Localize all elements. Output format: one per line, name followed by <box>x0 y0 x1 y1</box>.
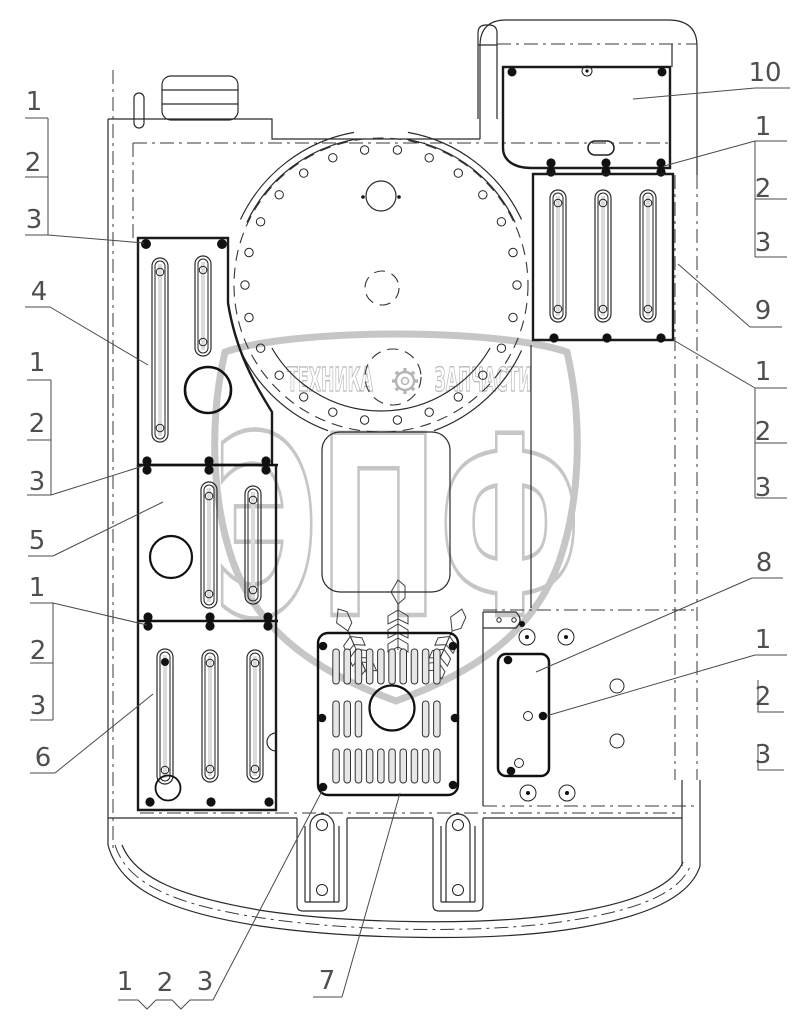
callout-label: 2 <box>755 174 772 204</box>
callout-label: 1 <box>755 112 772 142</box>
callout-label: 2 <box>755 682 772 712</box>
louvers-row-3 <box>333 749 440 783</box>
hull-inner <box>122 845 683 922</box>
callout-label: 8 <box>756 548 773 578</box>
callout-label: 3 <box>197 967 214 997</box>
vent-center-hole <box>370 686 415 731</box>
callout-label: 10 <box>748 58 781 88</box>
callout-label: 4 <box>31 277 48 307</box>
callout-label: 7 <box>319 966 336 996</box>
callout-label: 3 <box>30 691 47 721</box>
leader-bottom-group <box>118 791 322 1009</box>
watermark: ТЕХНИКА ЗАПЧАСТИ ЭПФ <box>213 334 581 701</box>
callout-label: 9 <box>755 296 772 326</box>
callout-label: 2 <box>755 417 772 447</box>
callout-label: 2 <box>29 409 46 439</box>
leader-left-upper-stack <box>25 118 144 243</box>
callout-label: 2 <box>25 148 42 178</box>
technical-diagram: ТЕХНИКА ЗАПЧАСТИ ЭПФ <box>0 0 807 1021</box>
vent-panel-7 <box>318 633 460 795</box>
breather-pin <box>134 93 144 128</box>
hull-outer <box>108 845 700 937</box>
callout-label: 1 <box>755 625 772 655</box>
callout-label: 3 <box>755 228 772 258</box>
bottom-bracket-left <box>297 814 347 911</box>
callout-label: 6 <box>35 743 52 773</box>
callout-label: 3 <box>29 467 46 497</box>
panel5-hole <box>150 536 192 578</box>
callout-label: 5 <box>29 526 46 556</box>
callout-label: 1 <box>755 357 772 387</box>
tank-cap <box>162 76 238 120</box>
callout-label: 1 <box>117 967 134 997</box>
callout-label: 3 <box>755 473 772 503</box>
callout-label: 1 <box>26 87 43 117</box>
callout-label: 2 <box>157 968 174 998</box>
callout-label: 3 <box>26 205 43 235</box>
diagram-page: { "diagram": { "type": "technical-parts-… <box>0 0 807 1021</box>
callout-label: 1 <box>29 573 46 603</box>
leader-part-10 <box>633 88 790 99</box>
leader-left-lower-stack <box>30 603 147 720</box>
right-panel-10 <box>503 66 670 168</box>
leader-right-lower-1 <box>546 655 787 716</box>
bottom-bracket-right <box>433 814 483 911</box>
louvers-row-2 <box>333 701 440 737</box>
callout-label: 2 <box>30 636 47 666</box>
callout-label: 1 <box>29 348 46 378</box>
leader-part-5 <box>28 502 163 556</box>
callout-label: 3 <box>755 740 772 770</box>
